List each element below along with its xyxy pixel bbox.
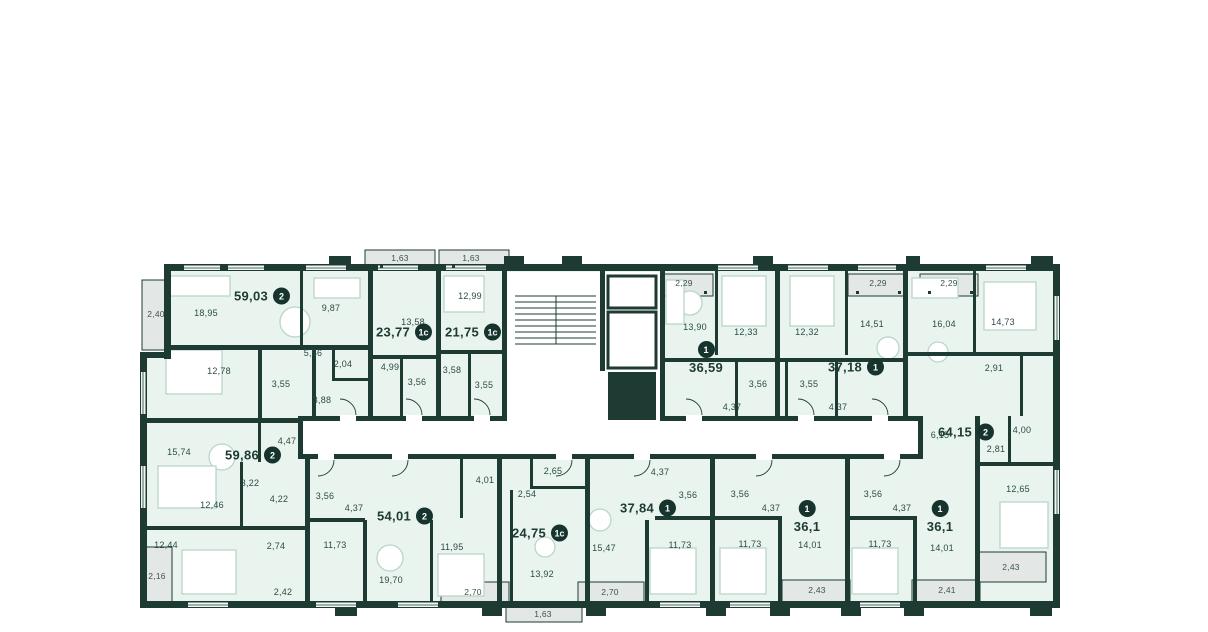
apartment-area-label: 54,01	[377, 509, 411, 524]
apartment-type-badge: 2	[264, 447, 281, 464]
apartment-type-badge: 1	[798, 500, 815, 517]
apartment-area-label: 23,77	[376, 325, 410, 340]
apartment-type-badge: 1	[697, 341, 714, 358]
apartment-type-badge: 1с	[484, 324, 501, 341]
apartment-type-badge: 1с	[415, 324, 432, 341]
floor-plan-page: 18,95 9,87 5,56 2,04 12,78 3,55 3,88 13,…	[0, 0, 1208, 632]
apartment-summary[interactable]: 36,1 1	[794, 500, 821, 534]
apartment-area-label: 21,75	[445, 325, 479, 340]
apartment-summary[interactable]: 24,75 1с	[512, 525, 568, 542]
apartment-area-label: 37,84	[620, 501, 654, 516]
apartment-type-badge: 2	[416, 508, 433, 525]
elevator-shaft	[608, 276, 656, 420]
apartment-type-badge: 1	[867, 359, 884, 376]
apartment-area-label: 59,03	[234, 289, 268, 304]
apartment-area-label: 36,1	[794, 519, 821, 534]
apartment-type-badge: 1	[659, 500, 676, 517]
apartment-area-label: 36,1	[927, 519, 954, 534]
apartment-summary[interactable]: 59,03 2	[234, 288, 290, 305]
apartment-summary[interactable]: 36,1 1	[927, 500, 954, 534]
apartment-summary[interactable]: 37,84 1	[620, 500, 676, 517]
floor-plan-drawing	[0, 0, 1208, 632]
apartment-area-label: 59,86	[225, 448, 259, 463]
apartment-area-label: 37,18	[828, 360, 862, 375]
apartment-area-label: 64,15	[938, 425, 972, 440]
apartment-area-label: 24,75	[512, 526, 546, 541]
apartment-type-badge: 1с	[551, 525, 568, 542]
apartment-type-badge: 2	[273, 288, 290, 305]
apartment-summary[interactable]: 37,18 1	[828, 359, 884, 376]
apartment-summary[interactable]: 64,15 2	[938, 424, 994, 441]
apartment-type-badge: 1	[931, 500, 948, 517]
apartment-summary[interactable]: 21,75 1с	[445, 324, 501, 341]
apartment-type-badge: 2	[977, 424, 994, 441]
apartment-summary[interactable]: 23,77 1с	[376, 324, 432, 341]
apartment-summary[interactable]: 59,86 2	[225, 447, 281, 464]
apartment-summary[interactable]: 54,01 2	[377, 508, 433, 525]
apartment-summary[interactable]: 36,59 1	[689, 341, 723, 375]
apartment-area-label: 36,59	[689, 360, 723, 375]
